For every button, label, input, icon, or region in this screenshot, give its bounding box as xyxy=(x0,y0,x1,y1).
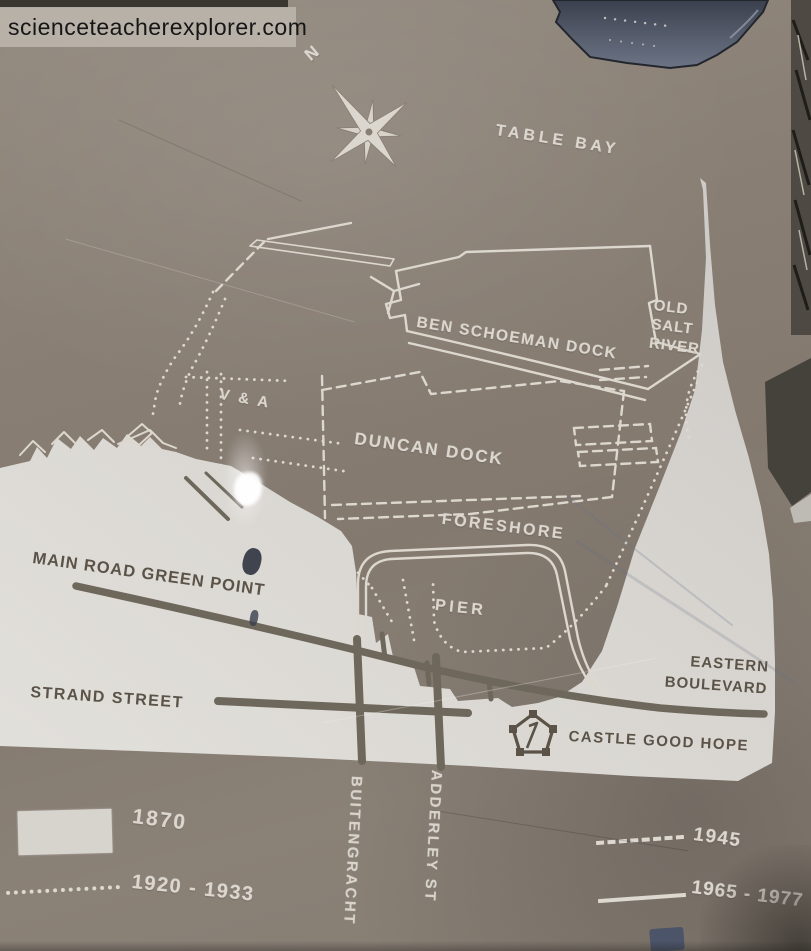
dock-outlines-dashed xyxy=(216,242,658,519)
photo-edge-vegetation xyxy=(791,0,811,335)
puddle-reflection xyxy=(553,0,768,68)
adderley-line xyxy=(436,657,441,767)
eastern-boulevard-label: EASTERN BOULEVARD xyxy=(642,648,770,701)
old-salt-river-label: OLD SALT RIVER xyxy=(648,296,705,359)
buitengracht-line xyxy=(357,639,362,761)
compass-rose-icon xyxy=(294,55,434,196)
watermark-panel: scienceteacherexplorer.com xyxy=(0,7,296,47)
map-engraving xyxy=(0,0,811,951)
watermark-text: scienceteacherexplorer.com xyxy=(0,14,307,41)
legend-1870-swatch xyxy=(17,809,112,855)
plaque-bevel-edge xyxy=(765,358,811,523)
plaque-photo: scienceteacherexplorer.com N TABLE BAY B… xyxy=(0,0,811,951)
